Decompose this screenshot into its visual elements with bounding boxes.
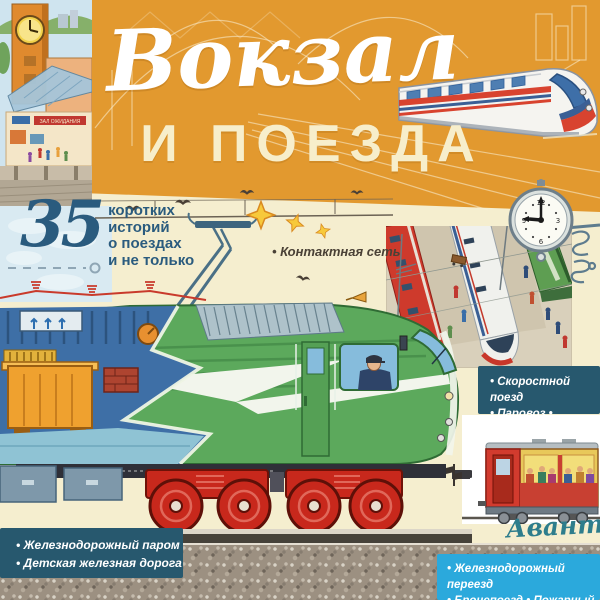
stories-caption: коротких историй о поездах и не только bbox=[108, 196, 194, 269]
svg-text:ЗАЛ ОЖИДАНИЯ: ЗАЛ ОЖИДАНИЯ bbox=[40, 119, 81, 125]
title-line2: И ПОЕЗДА bbox=[112, 118, 512, 170]
mirror bbox=[400, 336, 407, 350]
station-cutaway-illustration: ЗАЛ ОЖИДАНИЯ bbox=[0, 0, 92, 206]
sparks-icon bbox=[248, 202, 332, 240]
green-locomotive-illustration bbox=[0, 278, 472, 548]
panel-ferry-labels: • Железнодорожный паром • Детская железн… bbox=[0, 528, 183, 578]
bogie bbox=[146, 470, 270, 532]
svg-text:6: 6 bbox=[539, 238, 544, 246]
headlight bbox=[445, 392, 453, 400]
callout-catenary: • Контактная сеть bbox=[272, 244, 400, 259]
title-line1: Вокзал bbox=[105, 8, 438, 103]
panel-crossing-labels: • Железнодорожный переезд • Бронепоезд •… bbox=[437, 554, 600, 600]
radiator-block bbox=[104, 368, 138, 392]
badge-35-stories: 35 коротких историй о поездах и не тольк… bbox=[20, 196, 194, 269]
publisher-logo: Аванта bbox=[505, 510, 600, 544]
hv-cable-icon bbox=[0, 282, 206, 300]
book-cover: ЗАЛ ОЖИДАНИЯ bbox=[0, 0, 600, 600]
svg-text:3: 3 bbox=[556, 217, 560, 225]
fuse-row bbox=[4, 350, 56, 363]
stories-count: 35 bbox=[20, 196, 101, 255]
bogie bbox=[286, 470, 402, 532]
horn-icon bbox=[352, 292, 366, 302]
station-clock-icon: 12 3 6 9 bbox=[505, 178, 577, 262]
transformer bbox=[8, 366, 92, 428]
panel-speed-labels: • Скоростной поезд • Паровоз • Трамвай bbox=[478, 366, 600, 414]
semaphore-icon bbox=[444, 462, 464, 488]
